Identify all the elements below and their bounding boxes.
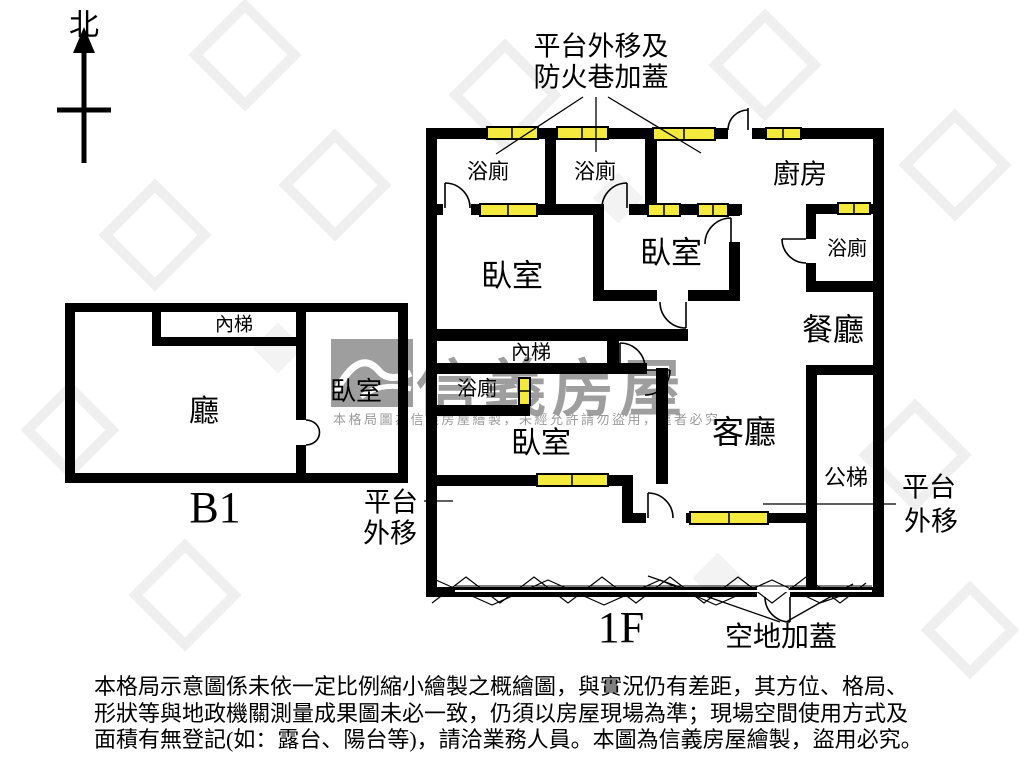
labels-layer: 北 平台外移及 防火巷加蓋 浴廁 浴廁 廚房 浴廁 臥室 臥室 餐廳 內梯 浴廁… <box>0 0 1024 768</box>
yard-cover-note: 空地加蓋 <box>725 624 837 652</box>
room-label-inner-stairs-b1: 內梯 <box>215 316 253 335</box>
room-label-bath-top-middle: 浴廁 <box>574 162 616 183</box>
platform-left-note-line1: 平台 <box>364 490 418 517</box>
platform-right-note-line2: 外移 <box>904 509 958 536</box>
room-label-bath-center: 浴廁 <box>457 379 497 399</box>
room-label-bedroom-middle: 臥室 <box>640 238 702 269</box>
top-note-line1: 平台外移及 <box>534 34 669 61</box>
room-label-bath-top-left: 浴廁 <box>467 162 509 183</box>
room-label-bedroom-lower: 臥室 <box>511 429 571 459</box>
disclaimer-line2: 形狀等與地政機關測量成果圖未必一致，仍須以房屋現場為準；現場空間使用方式及 <box>94 701 964 728</box>
disclaimer-text: 本格局示意圖係未依一定比例縮小繪製之概繪圖，與實況仍有差距，其方位、格局、 形狀… <box>94 674 964 754</box>
floor-plan-page: 信義房屋 本格局圖為信義房屋繪製，未經允許請勿盜用，違者必究 <box>0 0 1024 768</box>
room-label-bedroom-left: 臥室 <box>481 261 543 292</box>
floor-label-b1: B1 <box>189 486 240 530</box>
room-label-public-stairs: 公梯 <box>824 467 868 489</box>
room-label-dining: 餐廳 <box>802 315 864 346</box>
floor-label-1f: 1F <box>598 606 644 650</box>
disclaimer-line3: 面積有無登記(如：露台、陽台等)，請洽業務人員。本圖為信義房屋繪製，盜用必究。 <box>94 727 964 754</box>
room-label-kitchen: 廚房 <box>773 162 827 189</box>
disclaimer-line1: 本格局示意圖係未依一定比例縮小繪製之概繪圖，與實況仍有差距，其方位、格局、 <box>94 674 964 701</box>
north-label: 北 <box>69 11 99 41</box>
room-label-hall-b1: 廳 <box>189 397 219 427</box>
top-note-line2: 防火巷加蓋 <box>534 65 669 92</box>
room-label-bath-right: 浴廁 <box>827 239 867 259</box>
room-label-inner-stairs-1f: 內梯 <box>511 343 551 363</box>
platform-left-note-line2: 外移 <box>363 521 417 548</box>
room-label-bedroom-b1: 臥室 <box>330 379 382 405</box>
platform-right-note-line1: 平台 <box>902 475 956 502</box>
room-label-living: 客廳 <box>712 416 776 448</box>
